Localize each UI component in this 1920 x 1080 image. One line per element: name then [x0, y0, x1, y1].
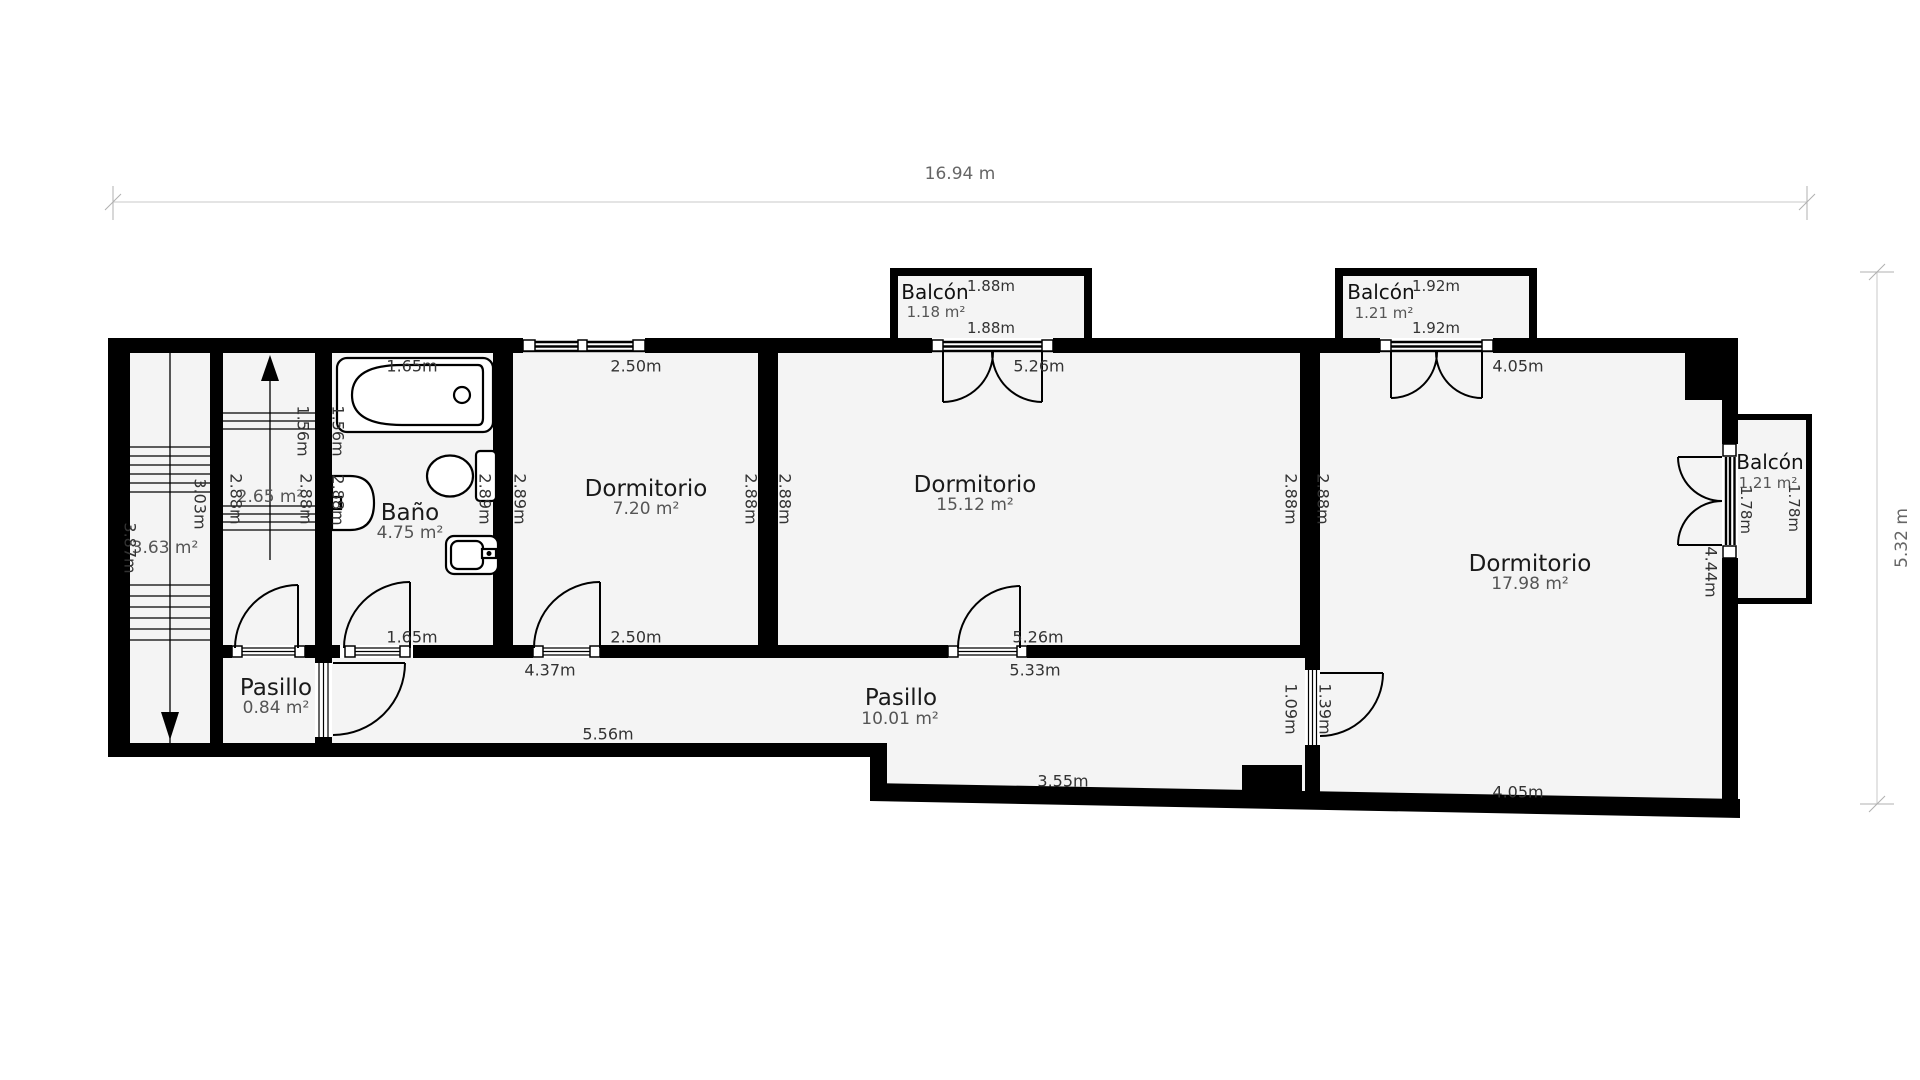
window-dormitorio-1	[523, 338, 645, 353]
pasillo-main-dim-2: 5.56m	[582, 725, 633, 744]
balcon-top-right-dim-bottom: 1.92m	[1412, 319, 1460, 337]
pasillo-small-area: 0.84 m²	[243, 698, 310, 718]
total-height-label: 5.32 m	[1892, 508, 1912, 568]
room-pasillo-main	[332, 658, 1305, 794]
pasillo-main-dim-4: 3.55m	[1037, 772, 1088, 791]
pasillo-main-area: 10.01 m²	[861, 709, 938, 729]
bano-dim-bottom: 1.65m	[386, 628, 437, 647]
dormitorio-1-dim-right: 2.88m	[742, 473, 761, 524]
dormitorio-3-dim-right: 4.44m	[1702, 546, 1721, 597]
balcon-right-dim-outer: 1.78m	[1785, 484, 1803, 532]
dimension-line-top: 16.94 m	[105, 164, 1815, 220]
staircase-left-dim-right: 3.03m	[191, 478, 210, 529]
pasillo-main-door-dim: 1.09m	[1282, 683, 1301, 734]
dormitorio-3-area: 17.98 m²	[1491, 574, 1568, 594]
dormitorio-1-dim-bottom: 2.50m	[610, 628, 661, 647]
staircase-mid-dim-left: 2.88m	[227, 473, 246, 524]
dormitorio-3-dim-top: 4.05m	[1492, 357, 1543, 376]
dormitorio-3-dim-left: 2.88m	[1314, 473, 1333, 524]
pasillo-main-dim-3: 5.33m	[1009, 661, 1060, 680]
dormitorio-1-dim-left: 2.89m	[511, 473, 530, 524]
staircase-mid-dim-top: 1.56m	[294, 405, 313, 456]
balcon-top-left-area: 1.18 m²	[907, 303, 966, 321]
balcon-right-name: Balcón	[1736, 450, 1803, 474]
balcon-top-right-dim-sup: 1.92m	[1412, 277, 1460, 295]
balcon-right-dim-inner: 1.78m	[1737, 486, 1755, 534]
dormitorio-3-dim-bottom: 4.05m	[1492, 783, 1543, 802]
dimension-line-right: 5.32 m	[1860, 264, 1912, 812]
balcon-top-right-name: Balcón	[1347, 280, 1414, 304]
room-dormitorio-2	[778, 353, 1300, 645]
balcon-top-left-name: Balcón	[901, 280, 968, 304]
balcon-top-left-dim-sup: 1.88m	[967, 277, 1015, 295]
bano-dim-top: 1.65m	[386, 357, 437, 376]
balcon-top-right-area: 1.21 m²	[1355, 304, 1414, 322]
staircase-left-area: 3.63 m²	[132, 538, 199, 558]
floor-plan-page: 16.94 m 5.32 m	[0, 0, 1920, 1080]
pillar	[1242, 765, 1302, 808]
staircase-left-dim-left: 3.87m	[121, 522, 140, 573]
dormitorio-1-area: 7.20 m²	[613, 499, 680, 519]
dormitorio-2-area: 15.12 m²	[936, 495, 1013, 515]
dormitorio-1-dim-top: 2.50m	[610, 357, 661, 376]
staircase-mid-area: 2.65 m²	[237, 487, 304, 507]
bano-dim-left-top: 1.56m	[329, 405, 348, 456]
dormitorio-2-dim-left: 2.88m	[776, 473, 795, 524]
pasillo-main-dim-1: 4.37m	[524, 661, 575, 680]
bano-dim-right: 2.89m	[476, 473, 495, 524]
total-width-label: 16.94 m	[925, 164, 996, 184]
bano-dim-left: 2.88m	[329, 474, 348, 525]
dormitorio-2-dim-top: 5.26m	[1013, 357, 1064, 376]
dormitorio-2-dim-bottom: 5.26m	[1012, 628, 1063, 647]
staircase-mid-dim-right: 2.88m	[297, 473, 316, 524]
dormitorio-2-dim-right: 2.88m	[1282, 473, 1301, 524]
balcon-top-left-dim-bottom: 1.88m	[967, 319, 1015, 337]
floor-plan-canvas: 16.94 m 5.32 m	[0, 0, 1920, 1080]
pasillo-main-name: Pasillo	[865, 685, 937, 711]
sink-icon	[446, 536, 498, 574]
dormitorio-3-door-dim: 1.39m	[1316, 683, 1335, 734]
bano-area: 4.75 m²	[377, 523, 444, 543]
